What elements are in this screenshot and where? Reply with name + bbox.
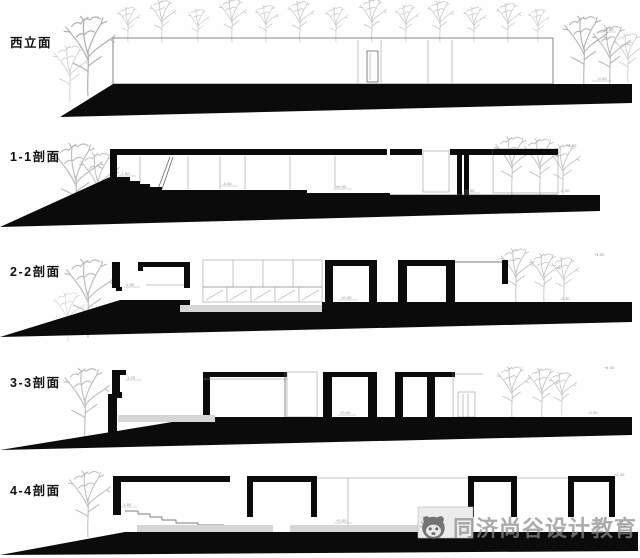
panel-label: 1-1剖面 <box>10 146 61 165</box>
panel-label: 4-4剖面 <box>10 480 61 499</box>
tree-row <box>118 0 550 42</box>
platform-slab <box>180 305 322 312</box>
panel-section-3-3: 3-3剖面 <box>0 360 640 465</box>
panel-label: 2-2剖面 <box>10 261 61 280</box>
platform-slab <box>118 415 215 422</box>
svg-text:-3.40: -3.40 <box>222 182 232 186</box>
greenhouse <box>203 260 322 302</box>
cut-wall <box>112 262 120 288</box>
svg-text:-0.30: -0.30 <box>618 524 628 528</box>
ground-mass <box>0 417 632 450</box>
ground-mass <box>60 84 632 117</box>
section-1-1-drawing: -1.50 -3.40 ±0.00 +0.00 +4.00 -0.30 <box>0 125 640 245</box>
flank-trees <box>68 471 110 537</box>
svg-text:-0.30: -0.30 <box>588 411 598 415</box>
interior-ramp <box>158 157 173 189</box>
svg-text:+4.00: +4.00 <box>603 28 614 32</box>
svg-text:+4.00: +4.00 <box>566 144 577 148</box>
svg-text:-0.30: -0.30 <box>560 189 570 193</box>
svg-text:1.20: 1.20 <box>127 376 135 380</box>
section-2-2-drawing: 1.00 +0.00 +4.00 -0.30 <box>0 245 640 360</box>
svg-text:1.50: 1.50 <box>123 503 131 507</box>
panel-label: 3-3剖面 <box>10 372 61 391</box>
panel-label: 西立面 <box>10 32 52 51</box>
entry-door <box>367 51 378 82</box>
svg-text:+4.00: +4.00 <box>614 473 625 477</box>
svg-text:+0.00: +0.00 <box>340 411 351 415</box>
svg-text:+4.00: +4.00 <box>594 253 605 257</box>
svg-text:-0.30: -0.30 <box>597 77 607 81</box>
platform-slab <box>137 525 273 532</box>
svg-text:+0.00: +0.00 <box>341 296 352 300</box>
panel-section-1-1: 1-1剖面 <box>0 125 640 245</box>
light-structure <box>418 507 473 538</box>
ground-mass <box>0 532 638 555</box>
west-elevation-drawing: +4.00 -0.30 <box>0 0 640 125</box>
double-door <box>458 392 475 417</box>
svg-text:+4.00: +4.00 <box>604 366 615 370</box>
drawing-sheet: 西立面 <box>0 0 640 558</box>
svg-text:-1.50: -1.50 <box>120 172 130 176</box>
section-3-3-drawing: 1.20 +0.00 +4.00 -0.30 <box>0 360 640 465</box>
panel-section-4-4: 4-4剖面 <box>0 465 640 558</box>
building-section <box>110 149 558 195</box>
svg-text:1.00: 1.00 <box>126 283 134 287</box>
building-section <box>113 476 615 525</box>
stair-line <box>125 511 224 525</box>
svg-text:-0.30: -0.30 <box>560 297 570 301</box>
section-4-4-drawing: 1.50 +0.00 +4.00 -0.30 <box>0 465 640 558</box>
svg-text:+0.00: +0.00 <box>336 519 347 523</box>
building-elevation <box>113 38 553 84</box>
panel-section-2-2: 2-2剖面 <box>0 245 640 360</box>
panel-west-elevation: 西立面 <box>0 0 640 125</box>
svg-text:+0.00: +0.00 <box>464 189 475 193</box>
ground-mass <box>0 177 600 227</box>
svg-text:±0.00: ±0.00 <box>336 185 346 189</box>
